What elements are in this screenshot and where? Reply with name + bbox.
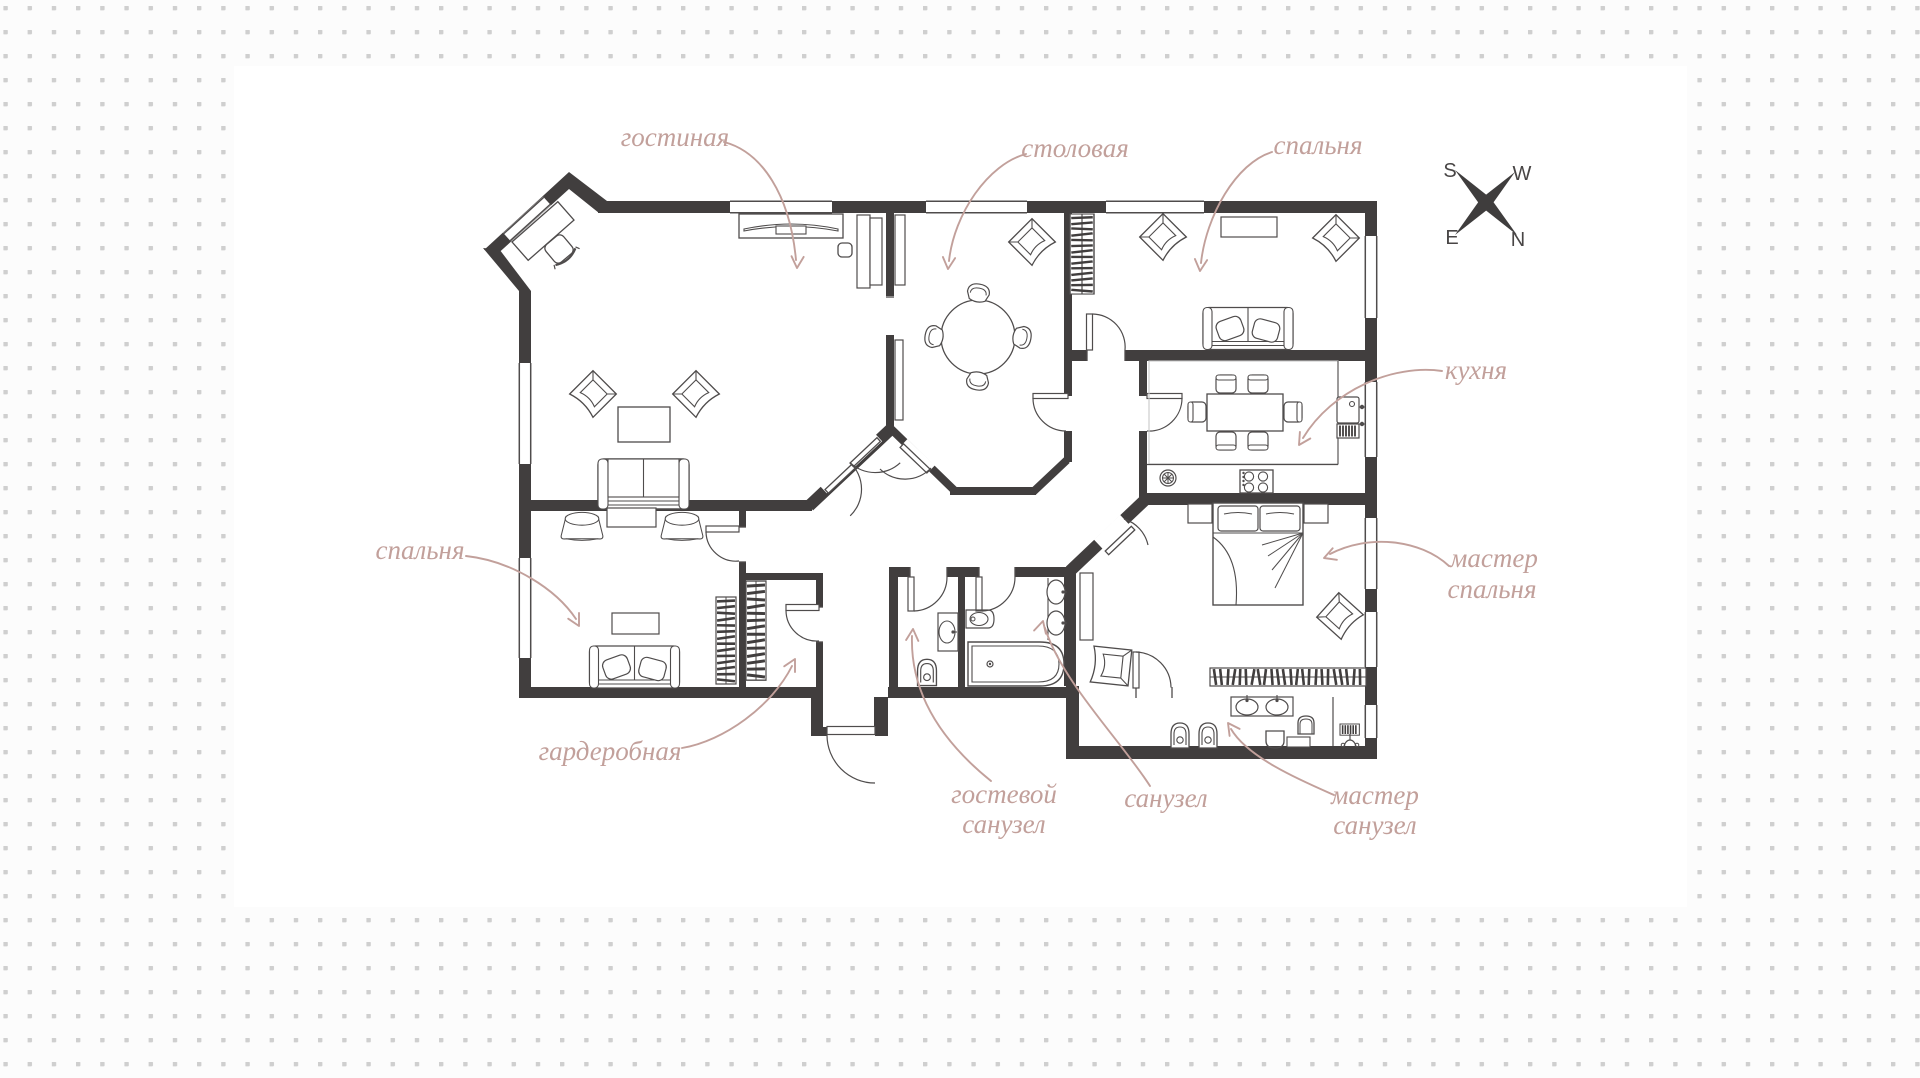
svg-text:спальня: спальня [1448, 574, 1537, 604]
svg-text:W: W [1513, 163, 1532, 185]
svg-text:санузел: санузел [962, 809, 1045, 839]
svg-text:гостевой: гостевой [951, 779, 1057, 809]
svg-text:санузел: санузел [1333, 810, 1416, 840]
svg-text:гардеробная: гардеробная [539, 736, 682, 766]
svg-text:N: N [1511, 229, 1525, 251]
svg-text:E: E [1445, 227, 1458, 249]
svg-text:S: S [1443, 160, 1456, 182]
svg-text:мастер: мастер [1449, 543, 1538, 573]
svg-text:кухня: кухня [1445, 355, 1507, 385]
svg-text:мастер: мастер [1330, 780, 1419, 810]
svg-text:спальня: спальня [1274, 130, 1363, 160]
svg-text:столовая: столовая [1021, 133, 1129, 163]
svg-text:гостиная: гостиная [621, 122, 729, 152]
svg-text:спальня: спальня [376, 535, 465, 565]
svg-text:санузел: санузел [1124, 783, 1207, 813]
